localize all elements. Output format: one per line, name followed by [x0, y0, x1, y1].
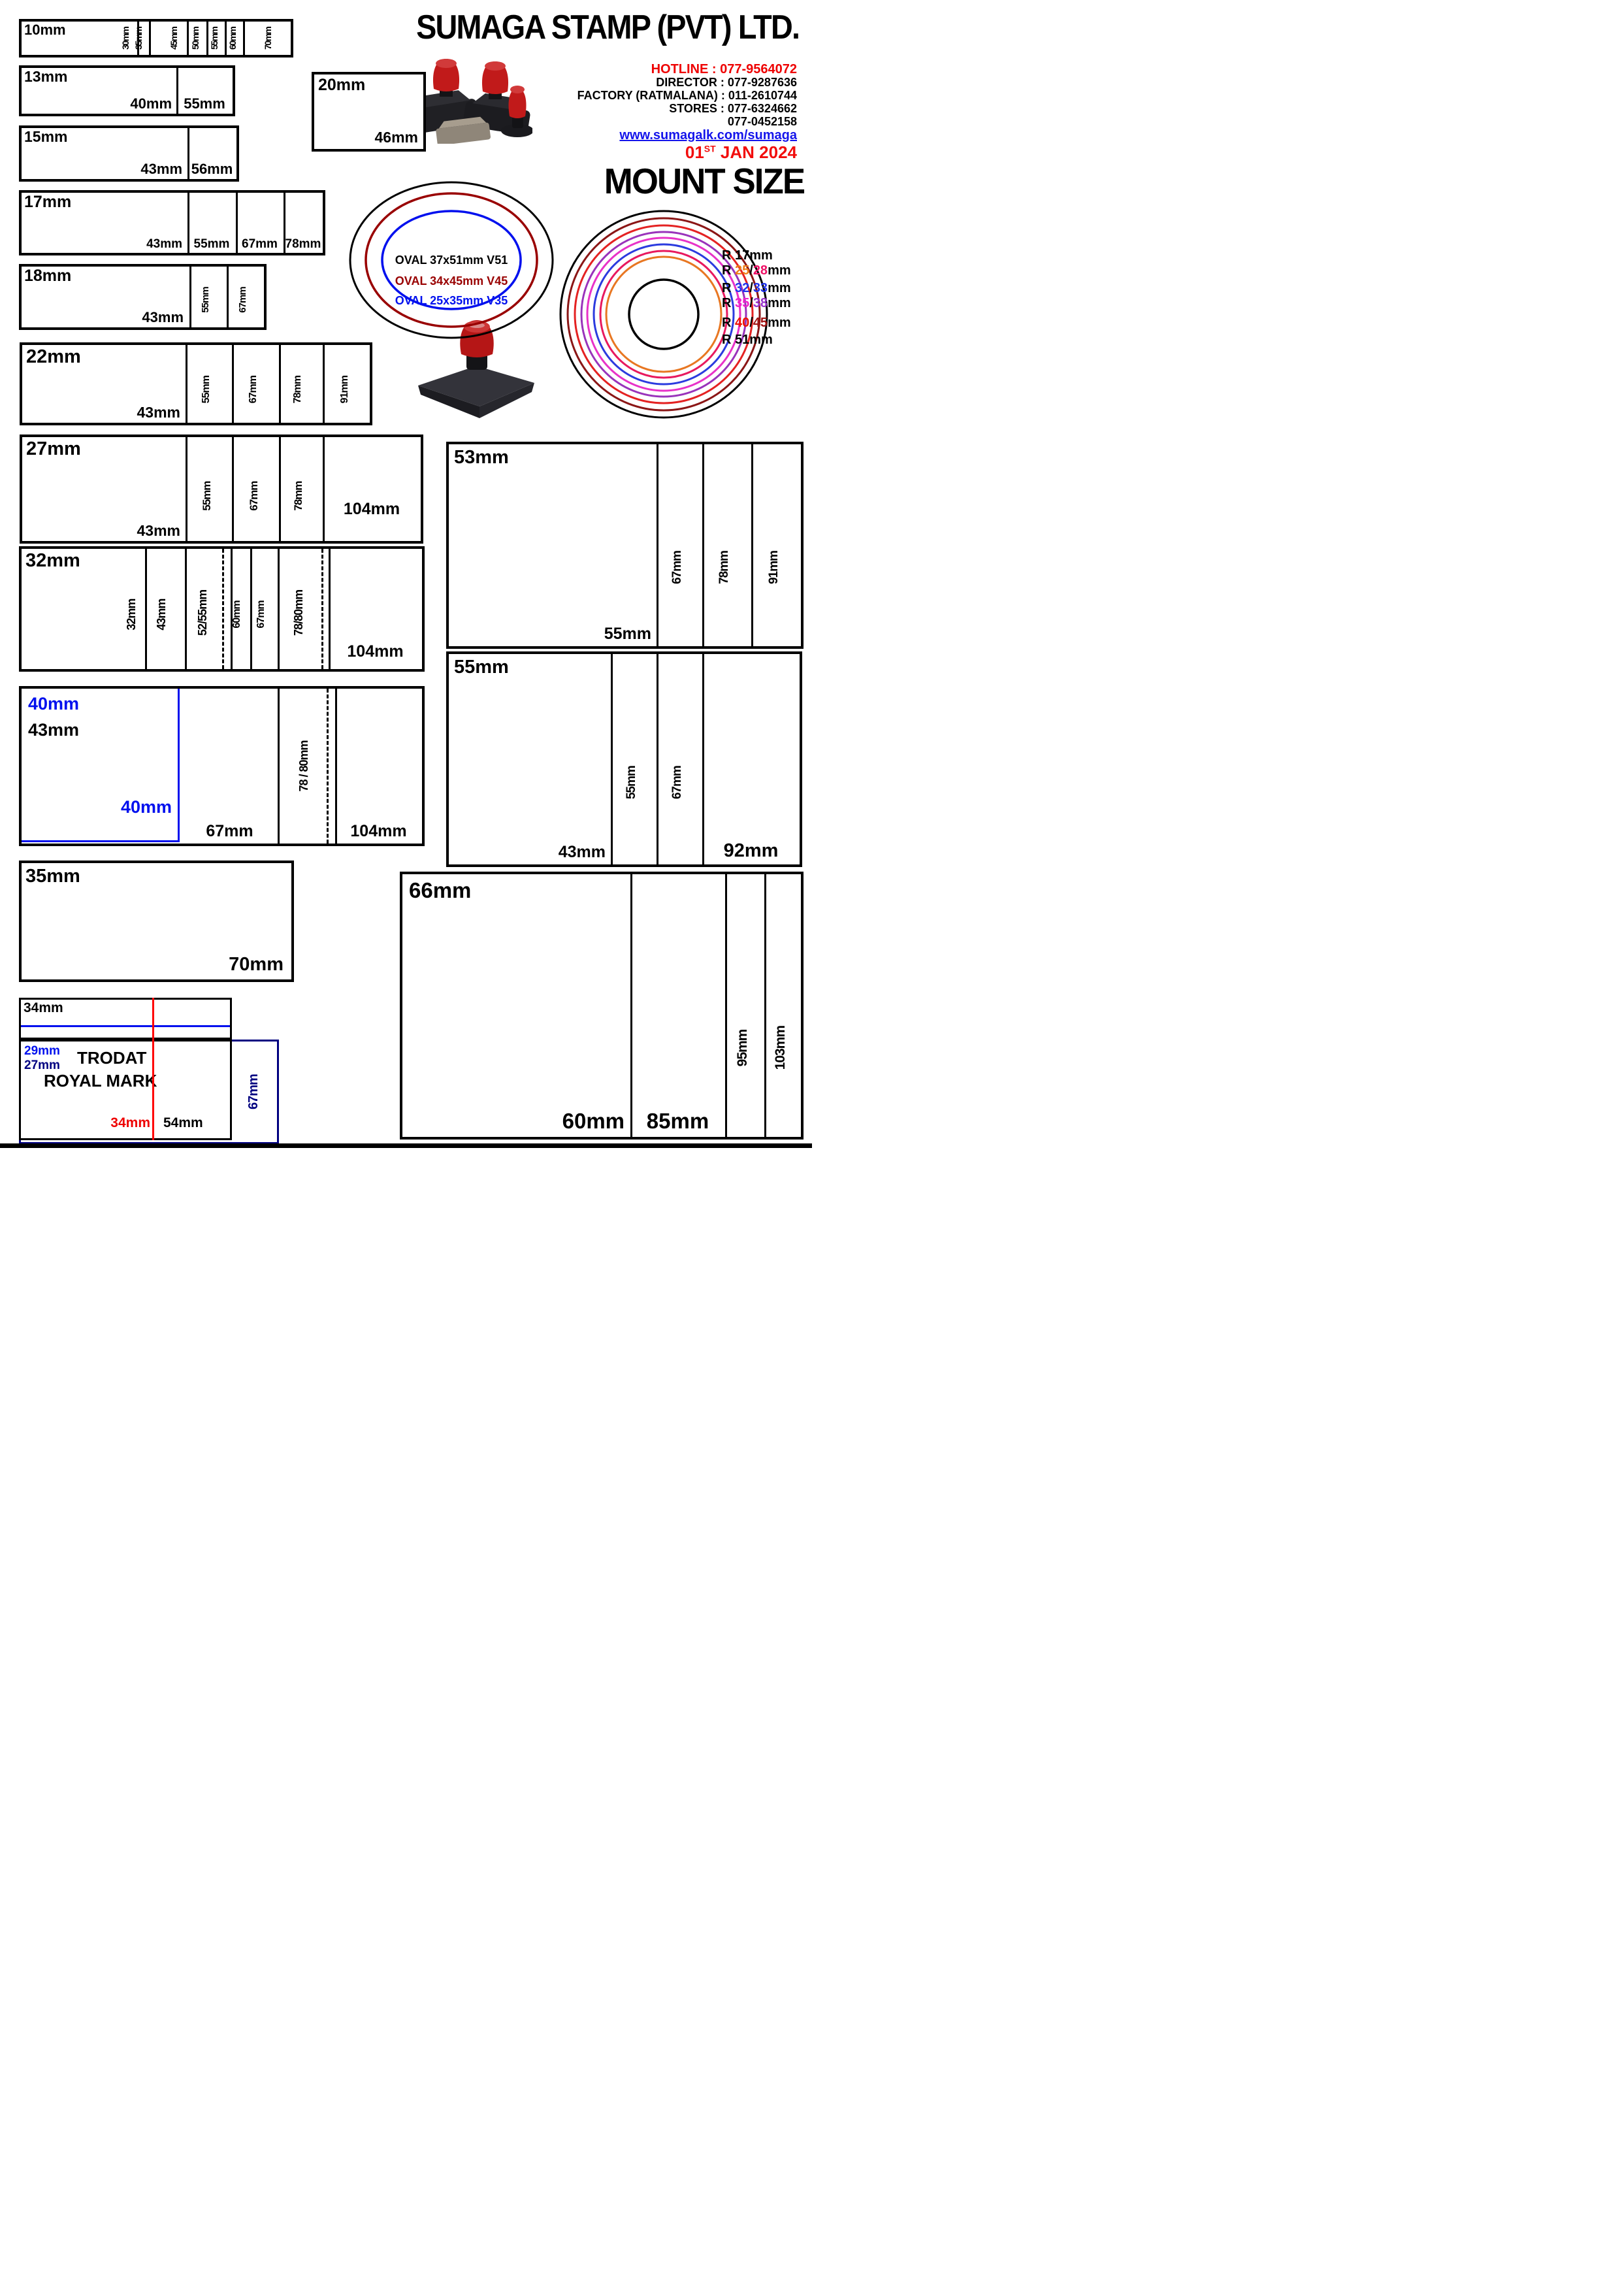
box-18mm-w55: 55mm — [201, 272, 215, 327]
box-40mm-w104: 104mm — [335, 823, 422, 840]
stamp-round-handle-top — [510, 86, 525, 93]
size-box-18mm: 18mm 43mm 55mm 67mm — [19, 264, 267, 330]
box-43mm-label: 43mm — [28, 721, 79, 739]
size-box-17mm: 17mm 43mm 55mm 67mm 78mm — [19, 190, 325, 255]
box-27mm-w104: 104mm — [323, 501, 421, 517]
mount-size-poster: SUMAGA STAMP (PVT) LTD. HOTLINE : 077-95… — [0, 0, 812, 1148]
blue-40mm-hline — [22, 840, 180, 842]
website-link[interactable]: www.sumagalk.com/sumaga — [619, 128, 797, 143]
box-13mm-w55: 55mm — [176, 97, 233, 111]
box-10mm-w50: 50mm — [191, 22, 205, 55]
stamp-mid-handle-top — [485, 61, 506, 71]
ring-28 — [600, 251, 727, 378]
box-55mm-w43: 43mm — [521, 844, 606, 861]
size-box-35mm: 35mm 70mm — [19, 861, 294, 982]
box-40mm-w67: 67mm — [182, 823, 278, 840]
box-35mm-w70: 70mm — [229, 955, 284, 974]
ring-label-35-38: R 35/38mm — [722, 297, 791, 310]
ring-label-25-28: R 25/28mm — [722, 264, 791, 277]
box-53mm-w67: 67mm — [671, 489, 688, 646]
red-34mm-line — [152, 998, 154, 1140]
date-day: 01 — [685, 142, 704, 162]
box-22mm-label: 22mm — [26, 348, 81, 367]
box-32mm-w67: 67mm — [256, 561, 272, 669]
box-40mm-blue-label: 40mm — [28, 695, 79, 713]
box-32mm-label: 32mm — [25, 551, 80, 570]
contact-factory: FACTORY (RATMALANA) : 011-2610744 — [577, 89, 797, 102]
ring-45 — [568, 218, 760, 410]
size-box-53mm: 53mm 55mm 67mm 78mm 91mm — [446, 442, 804, 649]
box-32mm-w52-55: 52/55mm — [197, 556, 215, 669]
box-20mm-w46: 46mm — [375, 130, 418, 145]
box-27mm-w43: 43mm — [88, 523, 180, 538]
contact-phone2: 077-0452158 — [577, 115, 797, 128]
box-66mm-w60: 60mm — [500, 1110, 625, 1132]
box-10mm-w55: 55mm — [210, 22, 224, 55]
ring-51 — [560, 211, 767, 418]
box-53mm-w91: 91mm — [768, 489, 785, 646]
box-66mm-w95: 95mm — [736, 959, 754, 1137]
box-66mm-w85: 85mm — [630, 1110, 725, 1132]
ring-17 — [629, 280, 698, 349]
contact-block: HOTLINE : 077-9564072 DIRECTOR : 077-928… — [577, 63, 797, 128]
round-sizes-diagram — [552, 203, 775, 426]
box-32mm-w104: 104mm — [329, 644, 422, 660]
oval-label-v35: OVAL 25x35mm V35 — [343, 295, 560, 306]
size-box-15mm: 15mm 43mm 56mm — [19, 125, 239, 182]
box-32mm-w78-80: 78/80mm — [293, 556, 311, 669]
size-box-13mm: 13mm 40mm 55mm — [19, 65, 235, 116]
box-53mm-label: 53mm — [454, 448, 509, 467]
box-32mm-w43: 43mm — [155, 561, 172, 669]
box-27mm-label: 27mm — [26, 440, 81, 459]
mount-size-heading: MOUNT SIZE — [604, 163, 804, 199]
box-10mm-label: 10mm — [24, 23, 66, 37]
box-18mm-w43: 43mm — [93, 310, 184, 325]
box-22mm-w55: 55mm — [201, 356, 217, 423]
size-box-55mm: 55mm 43mm 55mm 67mm 92mm — [446, 651, 802, 867]
trodat-line2: ROYAL MARK — [44, 1072, 157, 1089]
box-27mm-w67: 67mm — [248, 451, 264, 541]
box-40mm-w78-80: 78 / 80mm — [298, 698, 316, 834]
size-box-10mm: 10mm 30mm 35mm 45mm 50mm 55mm 60mm 70mm — [19, 19, 293, 57]
bottom-bar — [0, 1143, 812, 1148]
box-35mm-label: 35mm — [25, 867, 80, 886]
stamp-left-handle-top — [436, 59, 457, 68]
box-17mm-label: 17mm — [24, 194, 71, 210]
box-53mm-w78: 78mm — [718, 489, 735, 646]
blue-29mm-line — [21, 1025, 230, 1027]
box-66mm-label: 66mm — [409, 879, 471, 901]
box-17mm-w67: 67mm — [236, 238, 284, 250]
box-17mm-w78: 78mm — [284, 238, 323, 250]
box-32mm-w32: 32mm — [125, 561, 142, 669]
size-box-27mm: 27mm 43mm 55mm 67mm 78mm 104mm — [20, 435, 423, 544]
box-27mm-w78: 78mm — [293, 451, 308, 541]
box-18mm-label: 18mm — [24, 268, 71, 284]
company-title: SUMAGA STAMP (PVT) LTD. — [416, 10, 799, 44]
box-55mm-w55: 55mm — [625, 700, 642, 864]
date-rest: JAN 2024 — [716, 142, 797, 162]
box-22mm-w67: 67mm — [248, 356, 264, 423]
size-box-34mm: 34mm — [19, 998, 232, 1040]
box-66mm-w103: 103mm — [773, 959, 792, 1137]
trodat-54mm: 54mm — [163, 1116, 203, 1130]
contact-director: DIRECTOR : 077-9287636 — [577, 76, 797, 89]
box-18mm-w67: 67mm — [238, 272, 252, 327]
box-22mm-w43: 43mm — [88, 405, 180, 420]
box-10mm-w70: 70mm — [263, 22, 278, 55]
box-40mm-blue-bottom: 40mm — [80, 798, 172, 816]
ring-label-40-45: R 40/45mm — [722, 316, 791, 329]
box-22mm-w91: 91mm — [340, 356, 355, 423]
size-box-20mm: 20mm 46mm — [312, 72, 426, 152]
trodat-line1: TRODAT — [77, 1049, 146, 1066]
box-15mm-label: 15mm — [24, 129, 67, 144]
size-box-22mm: 22mm 43mm 55mm 67mm 78mm 91mm — [20, 342, 372, 425]
ring-25 — [606, 257, 721, 372]
oval-label-v51: OVAL 37x51mm V51 — [343, 254, 560, 266]
contact-hotline: HOTLINE : 077-9564072 — [577, 63, 797, 76]
box-13mm-w40: 40mm — [100, 97, 172, 111]
date-label: 01ST JAN 2024 — [685, 142, 797, 163]
box-10mm-w60: 60mm — [228, 22, 242, 55]
trodat-27mm: 27mm — [24, 1059, 60, 1072]
box-53mm-w55: 55mm — [566, 626, 651, 642]
date-sup: ST — [704, 143, 716, 154]
trodat-w67: 67mm — [247, 1041, 264, 1142]
size-box-66mm: 66mm 60mm 85mm 95mm 103mm — [400, 872, 804, 1140]
box-10mm-w35: 35mm — [134, 22, 148, 55]
box-15mm-w56: 56mm — [187, 162, 236, 176]
box-27mm-w55: 55mm — [201, 451, 217, 541]
size-box-40-43mm: 40mm 43mm 40mm 67mm 78 / 80mm 104mm — [19, 686, 425, 846]
ring-35 — [587, 238, 740, 391]
box-22mm-w78: 78mm — [293, 356, 308, 423]
trodat-29mm: 29mm — [24, 1045, 60, 1057]
box-13mm-label: 13mm — [24, 69, 67, 84]
size-box-32mm: 32mm 32mm 43mm 52/55mm 60mm 67mm 78/80mm… — [19, 546, 425, 672]
trodat-34mm-red: 34mm — [83, 1116, 150, 1130]
ring-label-51: R 51mm — [722, 333, 773, 346]
box-20mm-label: 20mm — [318, 77, 365, 93]
blue-40mm-vline — [178, 689, 180, 840]
oval-label-v45: OVAL 34x45mm V45 — [343, 275, 560, 287]
box-15mm-w43: 43mm — [113, 162, 182, 176]
ring-33 — [594, 244, 734, 384]
box-17mm-w43: 43mm — [106, 238, 182, 250]
box-55mm-w92: 92mm — [702, 842, 800, 861]
box-55mm-label: 55mm — [454, 658, 509, 677]
box-34mm-label: 34mm — [24, 1001, 63, 1015]
ring-label-17: R 17mm — [722, 249, 773, 262]
box-55mm-w67: 67mm — [671, 700, 688, 864]
ring-label-32-33: R 32/33mm — [722, 282, 791, 295]
contact-stores: STORES : 077-6324662 — [577, 102, 797, 115]
box-32mm-w60: 60mm — [232, 561, 248, 669]
trodat-box: 29mm 27mm TRODAT ROYAL MARK 34mm 54mm — [19, 1040, 232, 1140]
box-17mm-w55: 55mm — [187, 238, 236, 250]
box-10mm-w45: 45mm — [169, 22, 184, 55]
